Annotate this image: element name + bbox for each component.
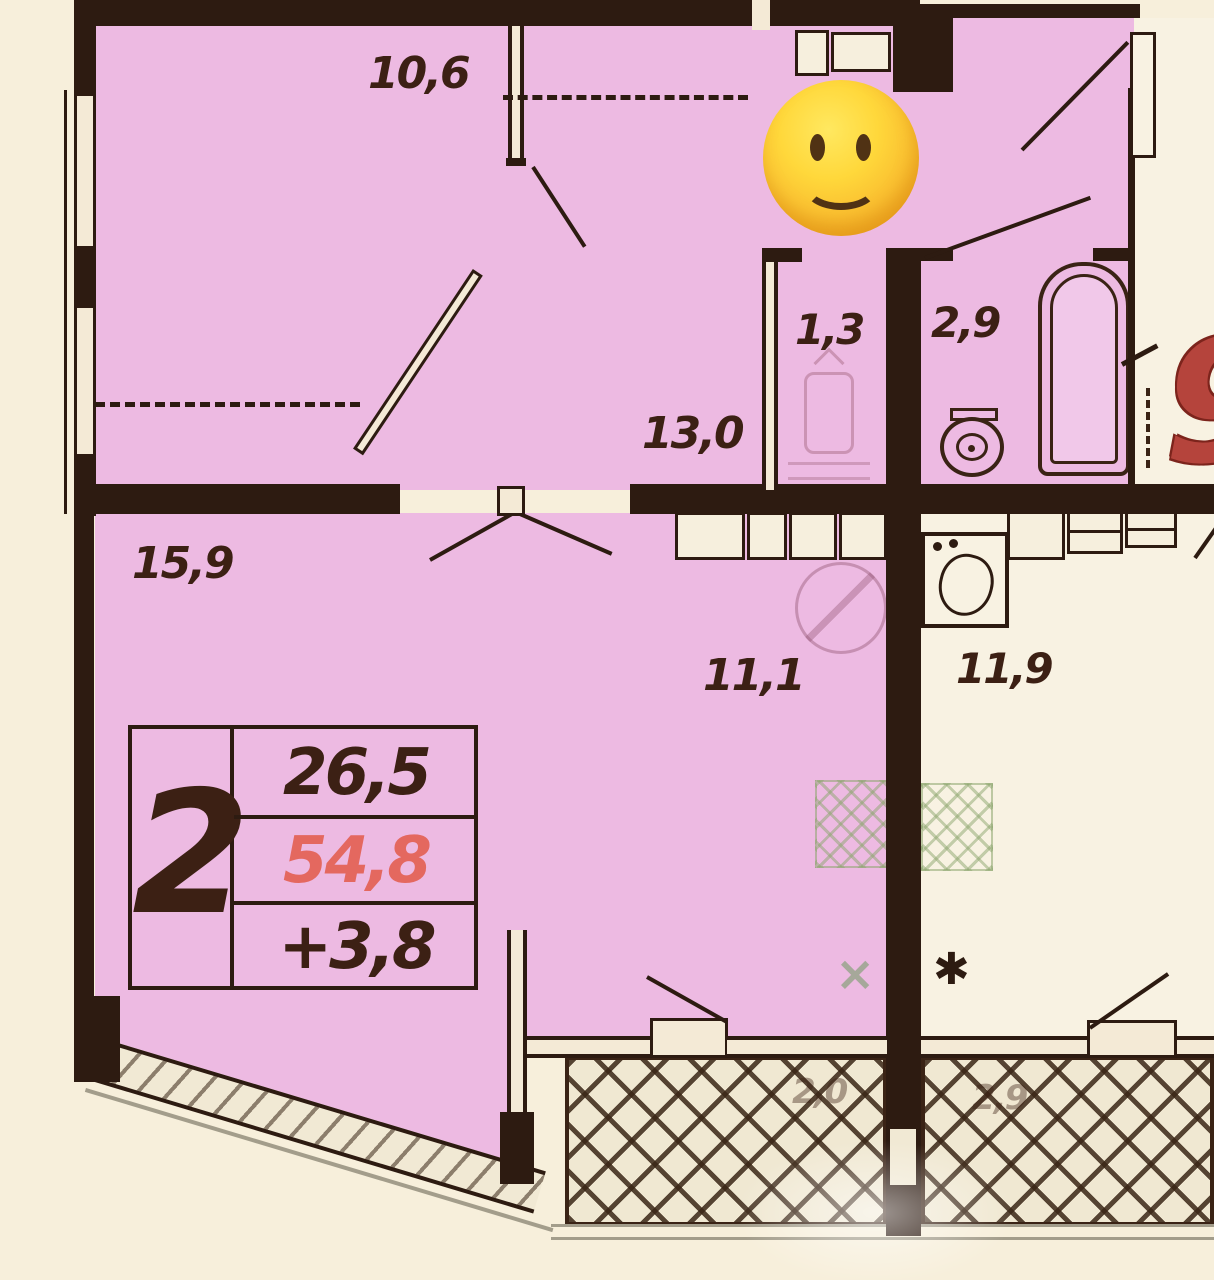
wall-segment (74, 0, 96, 98)
vent-shaft (795, 30, 829, 76)
living-area-value: 26,5 (234, 731, 478, 815)
wall-central (886, 248, 921, 1236)
room-label-storage: 1,3 (795, 305, 863, 354)
kitchen-living-partition (507, 930, 527, 1116)
smiley-emoji-icon (763, 80, 919, 236)
corner-dash-mark (1146, 388, 1150, 468)
balcony-door-leaf (1087, 1020, 1177, 1058)
wall-segment (630, 484, 1214, 514)
cross-mark: × (835, 946, 873, 1002)
smiley-mouth (803, 162, 879, 210)
room-label-bathroom: 2,9 (931, 298, 999, 347)
wall-segment (74, 0, 920, 26)
asterisk-mark: ✱ (933, 944, 968, 995)
kitchen-sink-icon (921, 532, 1009, 628)
stove-hatch-left (815, 780, 890, 868)
kitchen-cabinet (675, 512, 745, 560)
bathtub-inner (1050, 274, 1118, 464)
room-label-kitchen: 11,9 (956, 644, 1052, 693)
storage-shelf-line (788, 477, 870, 480)
dining-table-icon (795, 562, 887, 654)
dashed-zone-line (503, 95, 748, 100)
balcony-window (727, 1036, 887, 1058)
door-post (497, 486, 525, 516)
balcony-door-leaf (650, 1018, 728, 1058)
stove-hatch-right (921, 783, 993, 871)
wall-segment (74, 246, 96, 310)
bedroom-partition (508, 26, 524, 160)
sink-faucet-dot (933, 542, 942, 551)
kitchen-cabinet (747, 512, 787, 560)
toilet-icon (938, 408, 1016, 482)
corner-number: 9 (1164, 318, 1214, 488)
water-heater-icon (804, 372, 854, 454)
wall-nub (762, 248, 802, 262)
wall-segment (74, 484, 400, 514)
smiley-eye (810, 134, 825, 161)
counter-divider (1128, 528, 1174, 531)
dashed-zone-line (95, 402, 360, 407)
vent-shaft (831, 32, 891, 72)
room-label-living-room: 15,9 (132, 538, 233, 589)
bathtub-icon (1038, 262, 1130, 476)
entry-door-leaf (1130, 32, 1156, 158)
balcony-label-left: 2,0 (792, 1072, 846, 1112)
extra-area-value: +3,8 (234, 905, 478, 989)
room-label-kitchen-dining: 11,1 (703, 650, 804, 701)
kitchen-cabinet (789, 512, 837, 560)
floor-plan: × ✱ 10,6 1,3 2,9 13,0 15,9 11,1 11,9 2,0… (0, 0, 1214, 1280)
window-left-lower (74, 308, 96, 458)
sink-basin (932, 548, 999, 621)
balcony-window (527, 1036, 651, 1058)
balcony-window (921, 1036, 1087, 1058)
wall-segment (74, 996, 120, 1082)
wall-outer-face (64, 90, 67, 514)
total-area-value: 54,8 (234, 819, 478, 903)
counter-divider (1070, 530, 1120, 533)
wall-nub (1093, 248, 1134, 261)
toilet-dot (968, 445, 975, 452)
storage-wall (762, 252, 778, 490)
wall-segment (500, 1112, 534, 1184)
rooms-count: 2 (132, 729, 230, 986)
wall-segment (74, 484, 94, 1044)
wall-segment (893, 14, 953, 92)
window-left-upper (74, 96, 96, 248)
kitchen-counter (1007, 510, 1065, 560)
balcony-label-right: 2,9 (972, 1078, 1026, 1118)
room-label-hallway: 13,0 (642, 408, 743, 459)
wall-nub (506, 158, 526, 166)
room-label-bedroom: 10,6 (368, 48, 469, 99)
sink-faucet-dot (949, 539, 958, 548)
kitchen-cabinet (839, 512, 887, 560)
unit-info-table: 2 26,5 54,8 +3,8 (128, 725, 478, 990)
watermark (735, 1140, 1015, 1280)
balcony-window (1177, 1036, 1214, 1058)
wall-slot (752, 0, 770, 30)
storage-shelf-line (788, 462, 870, 465)
smiley-eye (856, 134, 871, 161)
